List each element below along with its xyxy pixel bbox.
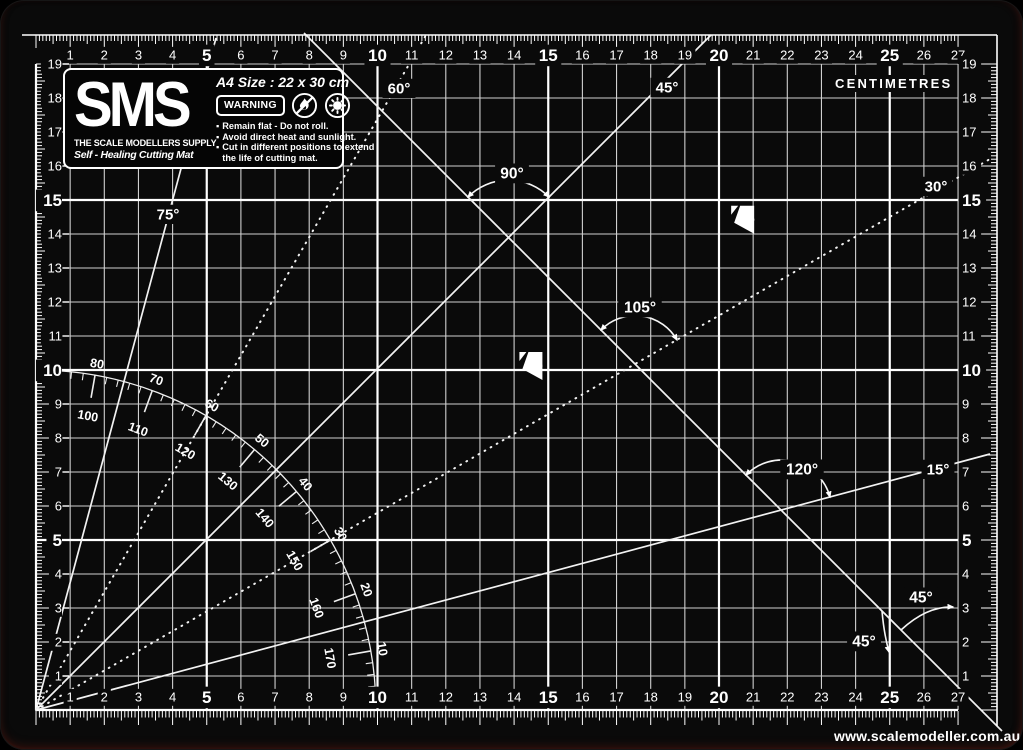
svg-text:5: 5 (962, 531, 971, 550)
svg-text:19: 19 (678, 690, 692, 705)
svg-text:13: 13 (48, 261, 62, 276)
svg-text:4: 4 (962, 567, 969, 582)
svg-text:14: 14 (48, 227, 62, 242)
svg-text:14: 14 (507, 690, 521, 705)
svg-text:23: 23 (814, 690, 828, 705)
svg-text:12: 12 (439, 690, 453, 705)
svg-text:8: 8 (55, 431, 62, 446)
svg-text:9: 9 (340, 48, 347, 63)
svg-text:15°: 15° (927, 461, 950, 478)
svg-text:18: 18 (962, 91, 976, 106)
svg-text:45°: 45° (656, 79, 679, 96)
warning-text: Cut in different positions to extend the… (222, 142, 378, 163)
warning-item: ▪Cut in different positions to extend th… (216, 142, 378, 163)
svg-text:10: 10 (374, 641, 390, 657)
svg-text:30°: 30° (925, 178, 948, 195)
svg-text:5: 5 (53, 531, 62, 550)
svg-text:20: 20 (357, 581, 375, 599)
brand-logo: SMS (74, 74, 208, 137)
svg-text:A6: A6 (527, 359, 543, 373)
svg-text:18: 18 (48, 91, 62, 106)
bullet-icon: ▪ (216, 142, 219, 163)
brand-panel: SMS THE SCALE MODELLERS SUPPLY Self - He… (63, 68, 344, 169)
svg-text:4: 4 (169, 690, 176, 705)
svg-text:7: 7 (55, 465, 62, 480)
svg-text:15: 15 (43, 191, 62, 210)
svg-text:140: 140 (253, 506, 277, 531)
website-url: www.scalemodeller.com.au (834, 728, 1020, 744)
svg-text:120°: 120° (786, 462, 818, 479)
svg-text:17: 17 (962, 125, 976, 140)
svg-text:7: 7 (271, 48, 278, 63)
svg-text:16: 16 (575, 48, 589, 63)
svg-text:24: 24 (848, 48, 862, 63)
svg-text:14: 14 (962, 227, 976, 242)
product-name-text: Self - Healing Cutting Mat (74, 149, 208, 161)
svg-text:40: 40 (295, 474, 315, 494)
svg-text:20: 20 (710, 46, 729, 65)
warning-item: ▪Avoid direct heat and sunlight. (216, 132, 378, 143)
svg-text:10: 10 (43, 361, 62, 380)
svg-text:10: 10 (962, 361, 981, 380)
svg-text:16: 16 (48, 159, 62, 174)
svg-text:7: 7 (271, 690, 278, 705)
svg-text:6: 6 (55, 499, 62, 514)
svg-text:90°: 90° (500, 166, 523, 183)
svg-text:6: 6 (237, 690, 244, 705)
svg-text:1: 1 (67, 690, 74, 705)
svg-text:18: 18 (643, 690, 657, 705)
svg-text:100: 100 (76, 407, 99, 424)
svg-text:3: 3 (135, 48, 142, 63)
svg-text:19: 19 (48, 57, 62, 72)
svg-text:A5: A5 (739, 213, 756, 227)
warning-text: Remain flat - Do not roll. (222, 121, 328, 132)
svg-text:5: 5 (202, 688, 211, 707)
svg-text:26: 26 (917, 690, 931, 705)
svg-text:80: 80 (89, 356, 105, 372)
svg-text:25: 25 (880, 688, 899, 707)
svg-text:10: 10 (368, 46, 387, 65)
bullet-icon: ▪ (216, 132, 219, 143)
svg-text:12: 12 (439, 48, 453, 63)
svg-text:26: 26 (917, 48, 931, 63)
svg-text:19: 19 (678, 48, 692, 63)
svg-text:20: 20 (710, 688, 729, 707)
svg-text:170: 170 (321, 647, 338, 670)
angle-annotations (468, 180, 953, 652)
svg-text:8: 8 (306, 690, 313, 705)
svg-text:1: 1 (67, 48, 74, 63)
svg-text:4: 4 (169, 48, 176, 63)
svg-text:9: 9 (55, 397, 62, 412)
svg-text:8: 8 (306, 48, 313, 63)
svg-text:10: 10 (368, 688, 387, 707)
svg-text:110: 110 (126, 419, 150, 439)
svg-text:1: 1 (962, 669, 969, 684)
svg-text:11: 11 (49, 329, 63, 344)
svg-text:13: 13 (473, 690, 487, 705)
svg-text:24: 24 (848, 690, 862, 705)
svg-text:21: 21 (746, 690, 760, 705)
svg-text:1: 1 (55, 669, 62, 684)
paper-size-markers: A5A6 (519, 206, 756, 380)
svg-text:16: 16 (575, 690, 589, 705)
svg-text:2: 2 (101, 690, 108, 705)
svg-text:9: 9 (340, 690, 347, 705)
svg-text:7: 7 (962, 465, 969, 480)
svg-text:19: 19 (962, 57, 976, 72)
svg-text:11: 11 (962, 329, 976, 344)
svg-text:5: 5 (202, 46, 211, 65)
svg-text:3: 3 (55, 601, 62, 616)
svg-text:105°: 105° (624, 300, 656, 317)
unit-label: CENTIMETRES (831, 75, 956, 92)
svg-text:2: 2 (962, 635, 969, 650)
bullet-icon: ▪ (216, 121, 219, 132)
svg-text:12: 12 (962, 295, 976, 310)
svg-text:2: 2 (101, 48, 108, 63)
svg-text:50: 50 (252, 431, 272, 451)
warning-badge: WARNING (216, 95, 285, 116)
warning-item: ▪Remain flat - Do not roll. (216, 121, 378, 132)
svg-text:25: 25 (880, 46, 899, 65)
warning-row: WARNING (216, 92, 378, 119)
svg-text:23: 23 (814, 48, 828, 63)
mat-size-label: A4 Size : 22 x 30 cm (216, 74, 378, 90)
brand-right-column: A4 Size : 22 x 30 cm WARNING (216, 74, 378, 163)
svg-text:2: 2 (55, 635, 62, 650)
svg-text:3: 3 (962, 601, 969, 616)
svg-text:17: 17 (48, 125, 62, 140)
svg-text:6: 6 (237, 48, 244, 63)
svg-text:13: 13 (962, 261, 976, 276)
svg-text:3: 3 (135, 690, 142, 705)
svg-text:60°: 60° (388, 80, 411, 97)
svg-text:6: 6 (962, 499, 969, 514)
svg-text:12: 12 (48, 295, 62, 310)
svg-text:27: 27 (951, 690, 965, 705)
svg-text:11: 11 (405, 48, 419, 63)
svg-text:15: 15 (539, 46, 558, 65)
brand-left-column: SMS THE SCALE MODELLERS SUPPLY Self - He… (74, 74, 208, 163)
svg-text:120: 120 (173, 440, 198, 463)
svg-text:18: 18 (643, 48, 657, 63)
svg-text:4: 4 (55, 567, 62, 582)
svg-text:8: 8 (962, 431, 969, 446)
svg-text:13: 13 (473, 48, 487, 63)
svg-text:150: 150 (283, 548, 306, 573)
svg-text:75°: 75° (157, 206, 180, 223)
no-open-flame-icon (291, 92, 318, 119)
svg-text:9: 9 (962, 397, 969, 412)
warning-text: Avoid direct heat and sunlight. (222, 132, 356, 143)
warning-list: ▪Remain flat - Do not roll. ▪Avoid direc… (216, 121, 378, 163)
svg-text:70: 70 (147, 371, 165, 389)
svg-text:14: 14 (507, 48, 521, 63)
cutting-mat: 8070605040302010100110120130140150160170… (0, 0, 1023, 750)
svg-text:15: 15 (539, 688, 558, 707)
avoid-sunlight-icon (324, 92, 351, 119)
svg-text:22: 22 (780, 48, 794, 63)
svg-text:21: 21 (746, 48, 760, 63)
svg-text:11: 11 (405, 690, 419, 705)
svg-text:45°: 45° (909, 590, 932, 607)
svg-text:17: 17 (609, 48, 623, 63)
svg-text:16: 16 (962, 159, 976, 174)
svg-text:130: 130 (215, 469, 240, 493)
svg-text:15: 15 (962, 191, 981, 210)
svg-text:17: 17 (609, 690, 623, 705)
svg-text:45°: 45° (852, 634, 875, 651)
svg-text:22: 22 (780, 690, 794, 705)
